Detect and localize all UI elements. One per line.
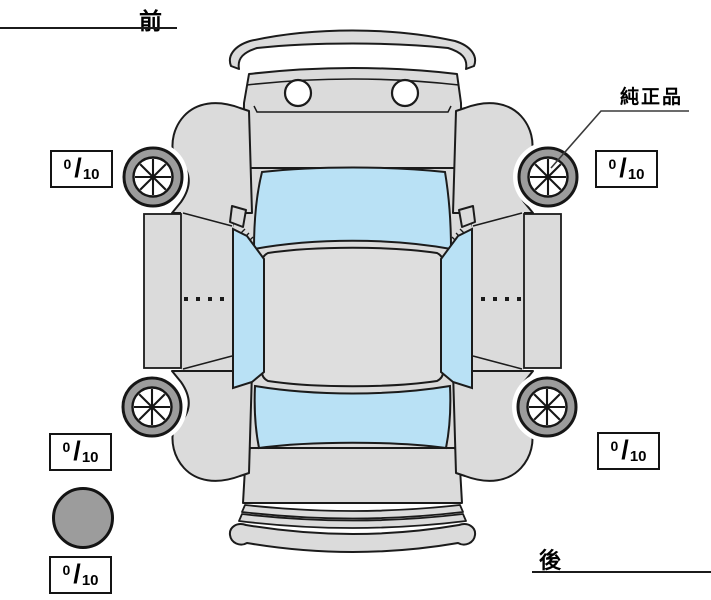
side-window-right <box>441 229 472 388</box>
front-underline <box>0 27 177 29</box>
roof <box>262 248 443 387</box>
rear-underline <box>532 571 711 573</box>
tread-value: 0 <box>609 156 617 172</box>
tread-separator: / <box>621 439 629 462</box>
vehicle-condition-diagram: 前 後 純正品 0 / 10 0 / 10 0 / 10 0 / 10 0 / … <box>0 0 711 600</box>
tread-max: 10 <box>83 166 100 183</box>
headlight-left-icon <box>285 80 311 106</box>
tread-separator: / <box>74 157 82 180</box>
tread-max: 10 <box>630 448 647 465</box>
wheel-front-left-icon <box>118 142 188 212</box>
spare-tire-icon <box>52 487 114 549</box>
hood <box>243 68 462 168</box>
windshield <box>254 168 451 250</box>
tread-separator: / <box>73 563 81 586</box>
tread-value: 0 <box>63 439 71 455</box>
wheel-front-right-icon <box>513 142 583 212</box>
tread-max: 10 <box>82 572 99 589</box>
tread-depth-box-rear-left: 0 / 10 <box>49 433 112 471</box>
rear-window <box>255 386 451 448</box>
wheel-rear-left-icon <box>117 372 187 442</box>
front-bumper <box>230 31 475 70</box>
tread-max: 10 <box>628 166 645 183</box>
tread-max: 10 <box>82 449 99 466</box>
front-label: 前 <box>139 2 163 36</box>
tread-separator: / <box>619 157 627 180</box>
side-window-left <box>233 229 264 388</box>
tread-value: 0 <box>63 562 71 578</box>
trunk <box>243 448 462 503</box>
genuine-parts-label: 純正品 <box>620 82 683 109</box>
headlight-right-icon <box>392 80 418 106</box>
tread-value: 0 <box>64 156 72 172</box>
tread-depth-box-front-left: 0 / 10 <box>50 150 113 188</box>
tread-separator: / <box>73 440 81 463</box>
tread-depth-box-spare: 0 / 10 <box>49 556 112 594</box>
tread-depth-box-rear-right: 0 / 10 <box>597 432 660 470</box>
tread-value: 0 <box>611 438 619 454</box>
tread-depth-box-front-right: 0 / 10 <box>595 150 658 188</box>
wheel-rear-right-icon <box>512 372 582 442</box>
